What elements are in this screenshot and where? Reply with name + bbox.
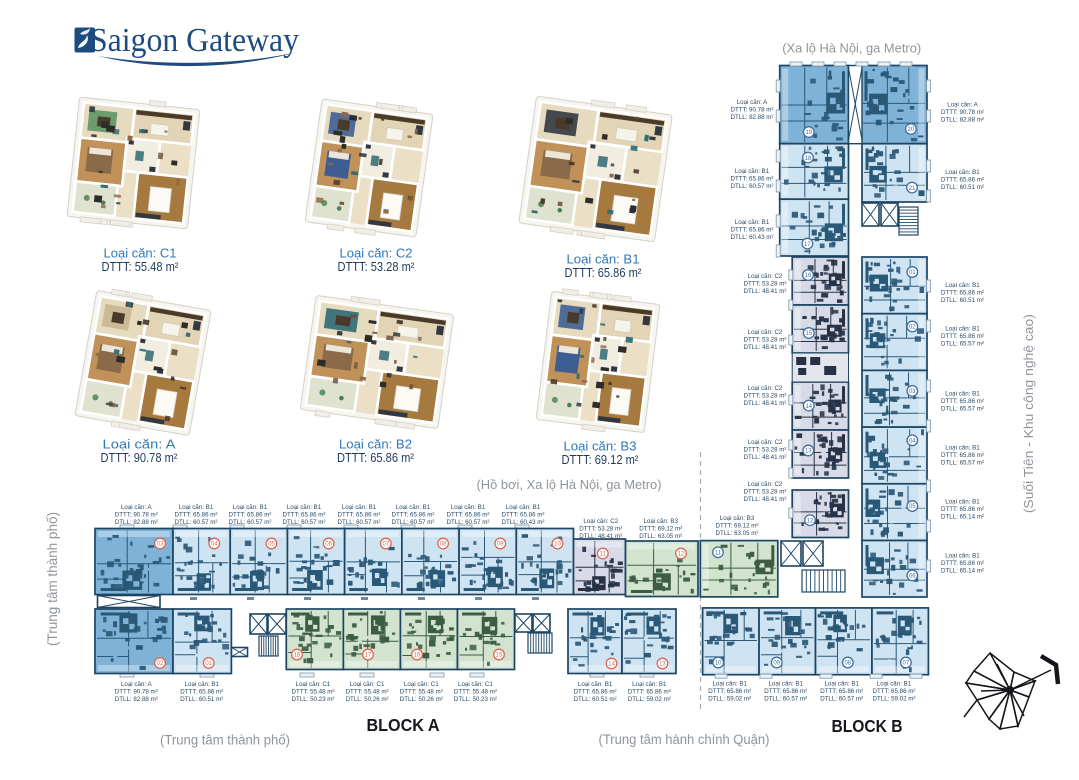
svg-text:Loại căn: B1: Loại căn: B1 — [396, 504, 431, 511]
svg-text:Loại căn: C2: Loại căn: C2 — [748, 273, 783, 280]
svg-text:12: 12 — [807, 518, 814, 524]
svg-text:Loại căn: C2: Loại căn: C2 — [583, 518, 618, 525]
svg-text:DTTT: 65.86 m²: DTTT: 65.86 m² — [731, 227, 774, 234]
svg-text:09: 09 — [773, 661, 780, 667]
svg-text:DTTT: 55.48 m²: DTTT: 55.48 m² — [400, 689, 443, 696]
svg-text:05: 05 — [909, 504, 916, 510]
svg-text:Loại căn: B1: Loại căn: B1 — [185, 681, 220, 688]
svg-text:DTTT: 65.86 m²: DTTT: 65.86 m² — [873, 688, 916, 695]
svg-text:DTTT: 65.86 m²: DTTT: 65.86 m² — [941, 560, 984, 567]
svg-text:04: 04 — [909, 439, 916, 445]
svg-text:DTLL: 60.57 m²: DTLL: 60.57 m² — [392, 519, 435, 526]
svg-text:Loại căn: B1: Loại căn: B1 — [506, 504, 541, 511]
svg-text:16: 16 — [805, 273, 812, 279]
svg-text:02: 02 — [157, 661, 164, 667]
svg-text:Loại căn: A: Loại căn: A — [103, 438, 177, 452]
svg-text:Loại căn: B1: Loại căn: B1 — [179, 504, 214, 511]
svg-text:20: 20 — [908, 127, 915, 133]
svg-text:DTLL: 60.57 m²: DTLL: 60.57 m² — [731, 183, 774, 190]
svg-text:DTTT: 65.86 m²: DTTT: 65.86 m² — [392, 512, 435, 519]
svg-text:DTTT: 65.86 m²: DTTT: 65.86 m² — [283, 512, 326, 519]
svg-text:DTLL: 60.51 m²: DTLL: 60.51 m² — [941, 184, 984, 191]
svg-text:DTTT: 90.78 m²: DTTT: 90.78 m² — [731, 107, 774, 114]
svg-text:BLOCK A: BLOCK A — [367, 715, 440, 735]
svg-text:DTLL: 60.43 m²: DTLL: 60.43 m² — [731, 234, 774, 241]
svg-text:16: 16 — [414, 653, 421, 659]
svg-text:DTLL: 50.26 m²: DTLL: 50.26 m² — [400, 696, 443, 703]
svg-text:Loại căn: B3: Loại căn: B3 — [643, 518, 678, 525]
svg-text:01: 01 — [205, 661, 212, 667]
svg-text:DTLL: 65.57 m²: DTLL: 65.57 m² — [941, 406, 984, 413]
svg-text:Loại căn: B1: Loại căn: B1 — [945, 391, 980, 398]
svg-text:DTLL: 60.57 m²: DTLL: 60.57 m² — [764, 696, 807, 703]
svg-text:Loại căn: B1: Loại căn: B1 — [945, 282, 980, 289]
svg-text:18: 18 — [805, 156, 812, 162]
svg-text:(Trung tâm thành phố): (Trung tâm thành phố) — [160, 733, 290, 748]
svg-text:DTTT: 65.86 m²: DTTT: 65.86 m² — [502, 512, 545, 519]
svg-text:DTLL: 50.23 m²: DTLL: 50.23 m² — [292, 696, 335, 703]
svg-text:DTTT: 90.78 m²: DTTT: 90.78 m² — [941, 109, 984, 116]
svg-text:09: 09 — [497, 542, 504, 548]
svg-text:Loại căn: B1: Loại căn: B1 — [578, 681, 613, 688]
svg-text:DTTT: 69.12 m²: DTTT: 69.12 m² — [716, 523, 759, 530]
svg-text:DTLL: 60.57 m²: DTLL: 60.57 m² — [175, 519, 218, 526]
svg-text:DTTT: 55.48 m²: DTTT: 55.48 m² — [454, 689, 497, 696]
svg-text:DTLL: 60.57 m²: DTLL: 60.57 m² — [338, 519, 381, 526]
svg-text:07: 07 — [903, 661, 910, 667]
svg-text:Loại căn: B1: Loại căn: B1 — [945, 499, 980, 506]
svg-text:DTLL: 65.57 m²: DTLL: 65.57 m² — [941, 341, 984, 348]
svg-text:17: 17 — [804, 242, 811, 248]
svg-text:DTTT: 53.28 m²: DTTT: 53.28 m² — [744, 393, 787, 400]
svg-text:08: 08 — [844, 661, 851, 667]
svg-text:05: 05 — [268, 542, 275, 548]
svg-text:Loại căn: C2: Loại căn: C2 — [748, 385, 783, 392]
svg-text:Loại căn: A: Loại căn: A — [947, 102, 978, 109]
svg-text:01: 01 — [909, 270, 916, 276]
svg-text:12: 12 — [678, 552, 685, 558]
svg-text:Loại căn: B1: Loại căn: B1 — [342, 504, 377, 511]
svg-text:DTLL: 48.41 m²: DTLL: 48.41 m² — [744, 496, 787, 503]
svg-text:Loại căn: C1: Loại căn: C1 — [104, 247, 177, 261]
svg-text:DTTT: 69.12 m²: DTTT: 69.12 m² — [639, 526, 682, 533]
svg-text:14: 14 — [805, 404, 812, 410]
svg-text:DTLL: 82.88 m²: DTLL: 82.88 m² — [941, 117, 984, 124]
svg-text:Loại căn: A: Loại căn: A — [121, 681, 152, 688]
svg-text:Loại căn: C1: Loại căn: C1 — [404, 681, 439, 688]
svg-text:DTTT: 65.86 m²: DTTT: 65.86 m² — [447, 512, 490, 519]
svg-text:DTLL: 63.05 m²: DTLL: 63.05 m² — [716, 530, 759, 537]
svg-text:Loại căn: B1: Loại căn: B1 — [567, 253, 640, 267]
svg-text:Loại căn: C1: Loại căn: C1 — [296, 681, 331, 688]
svg-text:DTTT: 65.86 m²: DTTT: 65.86 m² — [764, 688, 807, 695]
svg-text:DTLL: 60.57 m²: DTLL: 60.57 m² — [229, 519, 272, 526]
svg-text:Loại căn: B1: Loại căn: B1 — [945, 445, 980, 452]
svg-text:DTTT: 65.86 m²: DTTT: 65.86 m² — [565, 266, 642, 280]
svg-text:DTTT: 90.78 m²: DTTT: 90.78 m² — [101, 451, 178, 465]
svg-text:DTLL: 60.51 m²: DTLL: 60.51 m² — [941, 297, 984, 304]
svg-text:Loại căn: B3: Loại căn: B3 — [720, 515, 755, 522]
svg-text:Loại căn: B1: Loại căn: B1 — [768, 681, 803, 688]
svg-text:11: 11 — [600, 552, 607, 558]
svg-text:17: 17 — [365, 653, 372, 659]
svg-text:Loại căn: C2: Loại căn: C2 — [748, 481, 783, 488]
svg-text:DTTT: 65.86 m²: DTTT: 65.86 m² — [175, 512, 218, 519]
svg-text:DTTT: 53.28 m²: DTTT: 53.28 m² — [744, 489, 787, 496]
svg-text:(Trung tâm hành chính Quận): (Trung tâm hành chính Quận) — [599, 732, 770, 747]
svg-text:DTTT: 53.28 m²: DTTT: 53.28 m² — [744, 281, 787, 288]
svg-text:DTLL: 60.57 m²: DTLL: 60.57 m² — [820, 696, 863, 703]
svg-text:(Hồ bơi, Xa lộ Hà Nội, ga Metr: (Hồ bơi, Xa lộ Hà Nội, ga Metro) — [477, 477, 662, 492]
svg-text:DTLL: 60.57 m²: DTLL: 60.57 m² — [283, 519, 326, 526]
svg-text:Loại căn: B1: Loại căn: B1 — [945, 169, 980, 176]
svg-text:Loại căn: A: Loại căn: A — [737, 99, 768, 106]
svg-text:DTTT: 53.28 m²: DTTT: 53.28 m² — [338, 260, 415, 274]
svg-text:DTTT: 65.86 m²: DTTT: 65.86 m² — [337, 451, 414, 465]
svg-text:DTTT: 69.12 m²: DTTT: 69.12 m² — [562, 453, 639, 467]
svg-text:DTLL: 50.26 m²: DTLL: 50.26 m² — [346, 696, 389, 703]
svg-text:Saigon Gateway: Saigon Gateway — [90, 22, 299, 59]
svg-text:Loại căn: B1: Loại căn: B1 — [712, 681, 747, 688]
svg-text:Loại căn: A: Loại căn: A — [121, 504, 152, 511]
svg-text:Loại căn: B1: Loại căn: B1 — [824, 681, 859, 688]
svg-text:DTTT: 90.78 m²: DTTT: 90.78 m² — [115, 689, 158, 696]
svg-text:21: 21 — [909, 186, 916, 192]
svg-text:DTLL: 48.41 m²: DTLL: 48.41 m² — [744, 288, 787, 295]
svg-text:03: 03 — [909, 389, 916, 395]
svg-text:19: 19 — [805, 130, 812, 136]
svg-text:08: 08 — [440, 542, 447, 548]
svg-text:15: 15 — [805, 331, 812, 337]
svg-text:Loại căn: B1: Loại căn: B1 — [945, 553, 980, 560]
svg-text:DTTT: 65.86 m²: DTTT: 65.86 m² — [941, 506, 984, 513]
svg-text:DTTT: 65.86 m²: DTTT: 65.86 m² — [229, 512, 272, 519]
svg-text:DTTT: 65.86 m²: DTTT: 65.86 m² — [941, 177, 984, 184]
svg-text:(Trung tâm thành phố): (Trung tâm thành phố) — [45, 512, 60, 646]
svg-text:DTTT: 55.48 m²: DTTT: 55.48 m² — [292, 689, 335, 696]
svg-text:DTLL: 65.57 m²: DTLL: 65.57 m² — [941, 460, 984, 467]
svg-text:DTLL: 63.05 m²: DTLL: 63.05 m² — [639, 533, 682, 540]
svg-text:Loại căn: B1: Loại căn: B1 — [735, 219, 770, 226]
svg-text:DTTT: 65.86 m²: DTTT: 65.86 m² — [574, 689, 617, 696]
svg-text:DTTT: 55.48 m²: DTTT: 55.48 m² — [102, 260, 179, 274]
svg-text:DTTT: 53.28 m²: DTTT: 53.28 m² — [579, 526, 622, 533]
svg-text:02: 02 — [909, 325, 916, 331]
svg-text:DTTT: 65.86 m²: DTTT: 65.86 m² — [708, 688, 751, 695]
svg-text:DTLL: 59.02 m²: DTLL: 59.02 m² — [628, 696, 671, 703]
svg-text:18: 18 — [294, 653, 301, 659]
svg-text:DTLL: 65.14 m²: DTLL: 65.14 m² — [941, 568, 984, 575]
svg-text:06: 06 — [325, 542, 332, 548]
svg-text:10: 10 — [715, 661, 722, 667]
svg-text:DTTT: 65.86 m²: DTTT: 65.86 m² — [338, 512, 381, 519]
svg-text:DTTT: 65.86 m²: DTTT: 65.86 m² — [941, 398, 984, 405]
svg-text:Loại căn: B1: Loại căn: B1 — [735, 168, 770, 175]
svg-text:DTTT: 65.86 m²: DTTT: 65.86 m² — [941, 333, 984, 340]
svg-text:13: 13 — [805, 449, 812, 455]
svg-text:DTLL: 48.41 m²: DTLL: 48.41 m² — [744, 454, 787, 461]
svg-text:Loại căn: B1: Loại căn: B1 — [233, 504, 268, 511]
svg-text:13: 13 — [659, 662, 666, 668]
svg-text:DTTT: 55.48 m²: DTTT: 55.48 m² — [346, 689, 389, 696]
svg-text:DTLL: 50.23 m²: DTLL: 50.23 m² — [454, 696, 497, 703]
svg-text:14: 14 — [608, 662, 615, 668]
svg-text:DTLL: 59.02 m²: DTLL: 59.02 m² — [873, 696, 916, 703]
svg-text:DTLL: 65.14 m²: DTLL: 65.14 m² — [941, 514, 984, 521]
svg-text:Loại căn: B1: Loại căn: B1 — [451, 504, 486, 511]
svg-text:DTLL: 82.88 m²: DTLL: 82.88 m² — [115, 696, 158, 703]
svg-text:(Xa lộ Hà Nội, ga Metro): (Xa lộ Hà Nội, ga Metro) — [782, 41, 921, 56]
svg-text:Loại căn: C2: Loại căn: C2 — [748, 329, 783, 336]
svg-text:Loại căn: B1: Loại căn: B1 — [287, 504, 322, 511]
svg-text:06: 06 — [909, 574, 916, 580]
svg-text:Loại căn: B1: Loại căn: B1 — [877, 681, 912, 688]
svg-text:DTTT: 65.86 m²: DTTT: 65.86 m² — [180, 689, 223, 696]
svg-text:DTTT: 65.86 m²: DTTT: 65.86 m² — [731, 176, 774, 183]
svg-text:10: 10 — [554, 542, 561, 548]
svg-text:DTLL: 48.41 m²: DTLL: 48.41 m² — [744, 344, 787, 351]
svg-text:DTLL: 60.43 m²: DTLL: 60.43 m² — [502, 519, 545, 526]
svg-text:04: 04 — [211, 542, 218, 548]
svg-text:Loại căn: B2: Loại căn: B2 — [339, 438, 412, 452]
svg-text:15: 15 — [496, 653, 503, 659]
svg-text:DTTT: 65.86 m²: DTTT: 65.86 m² — [941, 452, 984, 459]
svg-text:DTLL: 82.88 m²: DTLL: 82.88 m² — [115, 519, 158, 526]
svg-text:Loại căn: C1: Loại căn: C1 — [458, 681, 493, 688]
svg-text:DTLL: 60.51 m²: DTLL: 60.51 m² — [574, 696, 617, 703]
svg-text:DTTT: 65.86 m²: DTTT: 65.86 m² — [820, 688, 863, 695]
svg-text:Loại căn: B1: Loại căn: B1 — [632, 681, 667, 688]
svg-text:DTTT: 53.28 m²: DTTT: 53.28 m² — [744, 337, 787, 344]
svg-text:Loại căn: C1: Loại căn: C1 — [350, 681, 385, 688]
svg-text:Loại căn: C2: Loại căn: C2 — [748, 439, 783, 446]
svg-text:DTLL: 48.41 m²: DTLL: 48.41 m² — [744, 400, 787, 407]
svg-text:03: 03 — [157, 542, 164, 548]
svg-text:DTLL: 60.51 m²: DTLL: 60.51 m² — [180, 696, 223, 703]
svg-text:Loại căn: B1: Loại căn: B1 — [945, 326, 980, 333]
svg-text:DTTT: 90.78 m²: DTTT: 90.78 m² — [115, 512, 158, 519]
svg-text:DTLL: 60.57 m²: DTLL: 60.57 m² — [447, 519, 490, 526]
svg-text:07: 07 — [383, 542, 390, 548]
svg-text:Loại căn: B3: Loại căn: B3 — [564, 440, 637, 454]
svg-text:BLOCK B: BLOCK B — [832, 716, 903, 736]
svg-text:DTLL: 59.02 m²: DTLL: 59.02 m² — [708, 696, 751, 703]
svg-text:DTTT: 65.86 m²: DTTT: 65.86 m² — [628, 689, 671, 696]
svg-text:11: 11 — [715, 551, 722, 557]
svg-text:DTTT: 65.86 m²: DTTT: 65.86 m² — [941, 290, 984, 297]
svg-text:DTTT: 53.28 m²: DTTT: 53.28 m² — [744, 447, 787, 454]
svg-text:Loại căn: C2: Loại căn: C2 — [340, 247, 413, 261]
svg-text:DTLL: 82.88 m²: DTLL: 82.88 m² — [731, 114, 774, 121]
svg-text:(Suối Tiên - Khu công nghệ cao: (Suối Tiên - Khu công nghệ cao) — [1021, 314, 1036, 513]
svg-text:DTLL: 48.41 m²: DTLL: 48.41 m² — [579, 533, 622, 540]
